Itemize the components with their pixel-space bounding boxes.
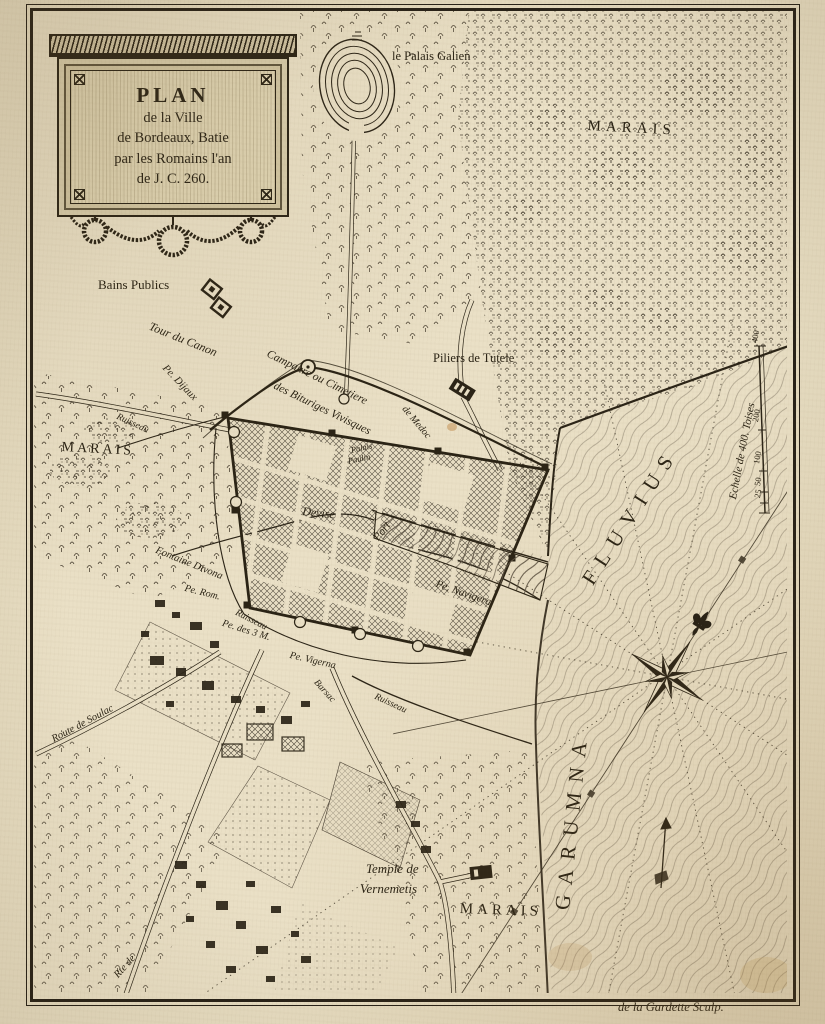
temple-vernemetis-building [469, 865, 492, 880]
corner-rosette-icon [261, 74, 272, 85]
title-cartouche: PLAN de la Ville de Bordeaux, Batie par … [55, 34, 291, 267]
map-title-line: PLAN [77, 83, 269, 108]
label-piliers-tutele: Piliers de Tutele [433, 352, 514, 366]
corner-rosette-icon [74, 74, 85, 85]
scale-tick: 25 [753, 489, 764, 499]
engraver-credit: de la Gardette Sculp. [618, 1001, 724, 1015]
label-bains-publics: Bains Publics [98, 278, 169, 292]
engraved-map-page: PLAN de la Ville de Bordeaux, Batie par … [0, 0, 825, 1024]
corner-rosette-icon [74, 189, 85, 200]
corner-rosette-icon [261, 189, 272, 200]
cartouche-cornice [49, 34, 297, 57]
map-title-line: de J. C. 260. [77, 169, 269, 189]
label-temple-line1: Temple de [366, 862, 419, 876]
label-temple-line2: Vernemetis [360, 882, 417, 896]
label-palais-galien: le Palais Galien [392, 50, 470, 64]
map-title-line: de Bordeaux, Batie [77, 128, 269, 148]
fields-southwest [34, 622, 420, 1000]
scale-tick: 50 [753, 477, 764, 487]
garland-icon [55, 215, 291, 267]
map-title-line: par les Romains l'an [77, 149, 269, 169]
bains-publics-buildings [202, 280, 231, 317]
map-title-line: de la Ville [77, 108, 269, 128]
label-marais-south: MARAIS [459, 901, 542, 920]
cartouche-plaque: PLAN de la Ville de Bordeaux, Batie par … [57, 57, 289, 217]
